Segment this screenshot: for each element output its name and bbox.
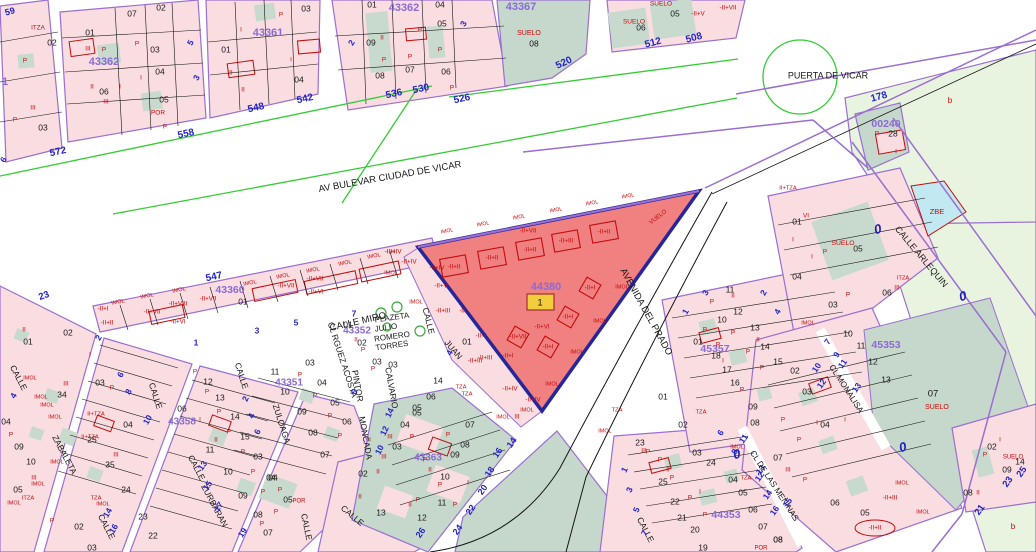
block-label: 43362 [389, 2, 420, 14]
construction-label: II [756, 337, 760, 344]
construction-label: -II+IV [525, 397, 541, 404]
construction-label: III [641, 448, 647, 455]
parcel-number: 01 [85, 27, 95, 37]
parcel-number: 07 [405, 64, 415, 74]
construction-label: I [699, 489, 701, 496]
parcel-number: 06 [830, 497, 840, 507]
parcel-number: 09 [748, 401, 758, 411]
construction-label: III [113, 452, 119, 459]
parcel-number: 05 [437, 18, 447, 28]
construction-label: P [251, 469, 255, 476]
construction-label: I [722, 358, 724, 365]
parcel-number: 09 [238, 490, 248, 500]
parcel-number: 06 [177, 403, 187, 413]
parcel-number: 15 [773, 356, 783, 366]
construction-label: P [298, 372, 302, 379]
construction-label: P [746, 349, 750, 356]
parcel-number: 05 [670, 8, 680, 18]
construction-label: -II+I [97, 306, 108, 313]
construction-label: III [894, 285, 900, 292]
parcel-number: 03 [392, 441, 402, 451]
construction-label: III [31, 475, 37, 482]
parcel-number: 18 [711, 350, 721, 360]
construction-label: IMOL [31, 481, 44, 487]
construction-label: I [844, 417, 846, 424]
parcel-number: 02 [678, 419, 688, 429]
construction-label: II [214, 437, 218, 444]
parcel-number: 05 [860, 507, 870, 517]
parcel-number: 09 [450, 449, 460, 459]
street-number: 1 [194, 337, 199, 347]
parcel-number: 06 [882, 287, 892, 297]
construction-label: I [290, 57, 292, 64]
parcel-number: 02 [47, 37, 57, 47]
street-number: 5 [294, 317, 299, 327]
parcel-number: 10 [843, 328, 853, 338]
parcel-number: 11 [206, 444, 215, 454]
construction-label: TZA [612, 408, 623, 414]
parcel-number: 07 [263, 527, 273, 537]
cadastral-map-canvas[interactable]: 59ITZA02IIIP1III03P57260702014336206IIPP… [0, 0, 1036, 552]
construction-label: IMOL [598, 428, 611, 434]
parcel-number: 01 [343, 319, 353, 329]
construction-label: VI [803, 213, 809, 220]
street-label: AV BULEVAR CIUDAD DE VICAR [318, 159, 463, 195]
construction-label: -II+I [542, 344, 553, 351]
construction-label: -II+II [448, 264, 461, 271]
parcel-number: 02 [63, 327, 73, 337]
construction-label: II [354, 337, 358, 344]
parcel-number: 11 [857, 340, 866, 350]
construction-label: IMOL [23, 375, 36, 381]
block-label: 43363 [414, 453, 442, 464]
parcel-number: 05 [330, 397, 340, 407]
street-number: 542 [296, 92, 315, 106]
construction-label: I [89, 352, 91, 359]
block-label: 1 [2, 76, 8, 88]
construction-label: ITZA [31, 25, 45, 32]
street-edge [932, 514, 962, 552]
construction-label: P [338, 433, 342, 440]
construction-label: P [163, 124, 167, 131]
parcel-number: 03 [253, 451, 263, 461]
construction-label: -II+III [559, 238, 574, 245]
parcel-number: 17 [722, 364, 732, 374]
parcel-number: 01 [238, 296, 248, 306]
construction-label: IMOL [40, 402, 53, 408]
construction-label: P [731, 330, 735, 337]
construction-label: P [193, 369, 197, 376]
construction-label: -II+VII [200, 296, 217, 303]
construction-label: P [438, 482, 442, 489]
construction-label: I [811, 254, 813, 261]
construction-label: P [688, 495, 692, 502]
construction-label: I [895, 149, 897, 156]
construction-label: P [102, 47, 106, 54]
parcel-number: 10 [280, 386, 290, 396]
construction-label: SUELO [517, 30, 541, 37]
parcel-number: 03 [388, 359, 398, 369]
construction-label: I [816, 420, 818, 427]
parcel-number: 14 [433, 375, 443, 385]
block-label: 45353 [871, 339, 900, 351]
construction-label: P [716, 342, 720, 349]
construction-label: IMOL [48, 414, 61, 420]
parcel-number: 22 [148, 530, 158, 540]
parcel-number: 09 [1002, 464, 1012, 474]
parcel-number: 07 [127, 8, 137, 18]
construction-label: P [382, 57, 386, 64]
construction-label: P [438, 47, 442, 54]
construction-label: -II+VII [520, 228, 537, 235]
street-number: 23 [37, 289, 51, 303]
construction-label: P [875, 131, 879, 138]
parcel-number: 08 [460, 439, 470, 449]
parcel-number: 10 [440, 471, 450, 481]
construction-label: I [467, 480, 469, 487]
construction-label: IMOL [593, 318, 606, 324]
parcel-number: 01 [23, 336, 33, 346]
construction-label: P [217, 409, 221, 416]
bulevar-edge [113, 98, 737, 214]
construction-label: II [976, 490, 980, 497]
parcel-number: 03 [38, 122, 48, 132]
parcel-number: 02 [790, 365, 800, 375]
parcel-number: 13 [376, 507, 386, 517]
construction-label: -II+IV [401, 259, 417, 266]
parcel-number: 02 [156, 2, 166, 12]
construction-label: III [85, 46, 91, 53]
construction-label: III [514, 414, 519, 421]
construction-label: P [423, 457, 427, 464]
construction-label: P [416, 497, 420, 504]
construction-label: IMOL [549, 206, 563, 214]
construction-label: P [760, 365, 764, 372]
parcel-number: 23 [635, 437, 645, 447]
construction-label: P [781, 417, 785, 424]
street-label: PUERTA DE VICAR [788, 70, 869, 80]
construction-label: II [408, 502, 412, 509]
subject-parcel-44380[interactable] [418, 191, 699, 411]
parcel-number: 01 [792, 216, 802, 226]
construction-label: P [50, 518, 54, 525]
parcel-number: 34 [57, 389, 67, 399]
construction-label: P [135, 41, 139, 48]
construction-label: POR [754, 546, 768, 552]
parcel-number: 23 [138, 511, 148, 521]
construction-label: II [90, 84, 94, 91]
construction-label: -II+VI [534, 324, 549, 331]
parcel-number: 14 [230, 411, 240, 421]
construction-label: P [261, 489, 265, 496]
street-number: 548 [247, 101, 266, 115]
construction-label: IMOL [476, 220, 490, 228]
construction-label: P [328, 413, 332, 420]
construction-label: P [703, 512, 707, 519]
construction-label: IMOL [801, 320, 814, 326]
construction-label: P [710, 299, 714, 306]
parcel-number: 04 [435, 0, 445, 9]
construction-label: IMOL [512, 213, 526, 221]
block-label: 44353 [711, 509, 740, 521]
construction-label: b [948, 96, 953, 105]
parcel-number: 05 [13, 484, 23, 494]
construction-label: -II+V [434, 283, 448, 290]
parcel-number: 12 [868, 356, 878, 366]
construction-label: I [119, 84, 121, 91]
parcel-number: 08 [963, 487, 973, 497]
parcel-number: 05 [853, 243, 863, 253]
parcel-number: 24 [121, 484, 131, 494]
construction-label: P [274, 509, 278, 516]
construction-label: -II+V [691, 11, 705, 18]
construction-label: P [797, 437, 801, 444]
parcel-number: 19 [698, 542, 708, 552]
parcel-number: 15 [240, 431, 250, 441]
cadastral-map-viewport[interactable]: 59ITZA02IIIP1III03P57260702014336206IIPP… [0, 0, 1036, 552]
construction-label: -II+III [436, 308, 451, 315]
construction-label: IMOL [570, 349, 583, 355]
parcel-number: 07 [928, 389, 939, 400]
construction-label: III [387, 434, 393, 441]
construction-label: III [30, 105, 36, 112]
parcel-number: 22 [670, 496, 680, 506]
street-number: 526 [453, 92, 472, 106]
parcel-number: 28 [888, 128, 898, 138]
parcel-number: 12 [417, 512, 427, 522]
parcel-number: 04 [728, 474, 738, 484]
construction-label: -II+II [524, 247, 537, 254]
parcel-number: 03 [305, 357, 315, 367]
construction-label: -II+VI [170, 319, 185, 326]
construction-label: IMOL [895, 480, 908, 486]
construction-label: P [453, 502, 457, 509]
construction-label: IMOL [50, 459, 63, 465]
construction-label: -II+IV [386, 249, 402, 256]
construction-label: ZBE [930, 207, 945, 216]
construction-label: P [371, 366, 375, 373]
construction-label: P [227, 429, 231, 436]
parcel-number: 06 [748, 504, 758, 514]
construction-label: -II+VII [510, 334, 527, 341]
construction-label: P [823, 249, 827, 256]
construction-label: ITZA [897, 276, 910, 282]
construction-label: IMOL [96, 501, 109, 507]
parcel-number: 02 [74, 521, 84, 531]
construction-label: IMOL [409, 299, 422, 305]
construction-label: POR [151, 110, 165, 117]
parcel-number: 03 [87, 542, 97, 552]
boundary [523, 120, 813, 152]
construction-label: SUELO [1003, 455, 1024, 461]
construction-label: IMOL [916, 509, 929, 515]
parcel-number: 25 [87, 434, 97, 444]
construction-label: -II+II [486, 255, 499, 262]
parcel-number: 03 [692, 447, 702, 457]
street-number: 558 [177, 127, 196, 141]
parcel-number: 25 [658, 476, 668, 486]
parcel-number: 08 [750, 417, 760, 427]
parcel-number: 09 [297, 406, 307, 416]
construction-label: IMOL [520, 407, 533, 413]
construction-label: b [1011, 522, 1016, 531]
construction-label: P [703, 327, 707, 334]
parcel-number: 12 [733, 306, 743, 316]
parcel-number: 12 [203, 376, 213, 386]
construction-label: II [380, 35, 384, 42]
parcel-number: 04 [400, 419, 410, 429]
parcel-number: 10 [26, 456, 36, 466]
construction-label: P [9, 432, 13, 439]
construction-label: -II+II [598, 229, 611, 236]
construction-label: II [666, 467, 670, 474]
construction-label: P [983, 452, 987, 459]
construction-label: P [313, 393, 317, 400]
construction-label: -II+I [562, 314, 573, 321]
construction-label: TZA [696, 410, 707, 416]
construction-label: II+TZA [779, 186, 797, 192]
construction-label: P [110, 385, 114, 392]
construction-label: IMOL [621, 192, 635, 200]
parcel-number: 02 [987, 441, 997, 451]
parcel-number: 04 [1, 416, 11, 426]
construction-label: -II+I [502, 353, 513, 360]
block-label: 44380 [531, 281, 562, 293]
parcel-number: 10 [223, 466, 233, 476]
construction-label: P [670, 475, 674, 482]
parcel-number: 21 [677, 512, 687, 522]
construction-label: POR [292, 499, 306, 505]
construction-label: -II+IV [502, 386, 518, 393]
construction-label: IMOL [496, 414, 509, 420]
construction-label: P [410, 434, 414, 441]
construction-label: -II+III [468, 358, 483, 365]
construction-label: I [999, 437, 1001, 444]
street-number: 7 [352, 308, 357, 318]
parcel-number: 02 [358, 468, 368, 478]
construction-label: III [103, 99, 109, 106]
parcel-number: 03 [802, 386, 812, 396]
parcel-number: 04 [294, 74, 304, 84]
construction-label: P [361, 347, 365, 354]
construction-label: -II+II [869, 525, 882, 532]
construction-label: II [376, 469, 380, 476]
parcel-number: 09 [366, 37, 376, 47]
parcel-number: 04 [123, 419, 133, 429]
parcel-number: 01 [221, 44, 231, 54]
construction-label: IMOL [440, 227, 454, 235]
construction-label: P [450, 85, 454, 92]
construction-label: II [22, 327, 26, 334]
construction-label: -II+III [883, 495, 898, 502]
parcel-number: 09 [14, 441, 24, 451]
parcel-number: 20 [690, 524, 700, 534]
parcel-number: 07 [320, 449, 330, 459]
construction-label: P [846, 292, 850, 299]
parcel-number: 03 [150, 44, 160, 54]
construction-label: -II+VIII [169, 301, 188, 308]
parcel-number: 06 [441, 66, 451, 76]
construction-label: P [205, 389, 209, 396]
construction-label: III [785, 467, 791, 474]
parcel-number: 16 [730, 377, 740, 387]
construction-label: IMOL [585, 199, 599, 207]
construction-label: I [140, 75, 142, 82]
construction-label: P [418, 27, 422, 34]
construction-label: TZA [462, 392, 473, 398]
parcel-number: 04 [820, 419, 830, 429]
construction-label: -II [459, 308, 465, 315]
parcel-number: 01 [462, 336, 472, 346]
parcel-number: 08 [773, 534, 783, 544]
construction-label: P [241, 449, 245, 456]
construction-label: -II+I [475, 333, 486, 340]
parcel-number: 03 [301, 3, 311, 13]
parcel-marker-label[interactable]: 1 [537, 298, 542, 309]
block-label: 43361 [253, 27, 284, 39]
construction-label: II [241, 87, 245, 94]
parcel-number: 05 [159, 94, 169, 104]
parcel-number: 01 [658, 391, 668, 401]
construction-label: II [428, 467, 432, 474]
block-label: 43358 [168, 417, 196, 428]
parcel-number: 13 [881, 374, 891, 384]
parcel-number: 24 [706, 457, 716, 467]
construction-label: -II+VII [144, 309, 161, 316]
block-label: 43367 [506, 1, 537, 13]
parcel-number: 07 [465, 419, 475, 429]
block-label: 43362 [89, 56, 120, 68]
construction-label: I [199, 417, 201, 424]
construction-label: SUELO [925, 404, 949, 411]
construction-label: P [740, 387, 744, 394]
construction-label: -II+VII [720, 5, 737, 12]
tree [415, 326, 425, 336]
construction-label: IMOL [7, 500, 20, 506]
construction-label: P [803, 477, 807, 484]
parcel-number: 07 [773, 452, 783, 462]
construction-label: TZA [741, 476, 752, 482]
construction-label: ITZA [22, 496, 35, 502]
construction-label: SUELO [831, 240, 854, 247]
construction-label: P [446, 432, 450, 439]
construction-label: -II+VII [307, 276, 324, 283]
construction-label: II [731, 293, 735, 300]
construction-label: III [381, 454, 387, 461]
parcel-number: 03 [95, 377, 105, 387]
parcel-number: 06 [426, 391, 436, 401]
construction-label: P [658, 457, 662, 464]
parcel-number: 05 [412, 407, 422, 417]
construction-label: P [13, 117, 17, 124]
parcel-number: 03 [828, 299, 838, 309]
parcel-number: 01 [367, 0, 377, 9]
parcel-number: 06 [99, 86, 109, 96]
parcel-number: 05 [738, 487, 748, 497]
construction-label: II+TZA [87, 412, 105, 418]
construction-label: -II+I [584, 285, 595, 292]
construction-label: P [260, 521, 264, 528]
street-number: 572 [49, 145, 68, 159]
construction-label: P [23, 58, 27, 65]
construction-label: -II+II [101, 320, 114, 327]
parcel-number: 13 [215, 392, 225, 402]
construction-label: -II+VI [308, 289, 323, 296]
construction-label: II [358, 494, 362, 501]
street-number: 3 [255, 325, 260, 335]
parcel-number: 08 [308, 427, 318, 437]
construction-label: IMOL [34, 394, 47, 400]
